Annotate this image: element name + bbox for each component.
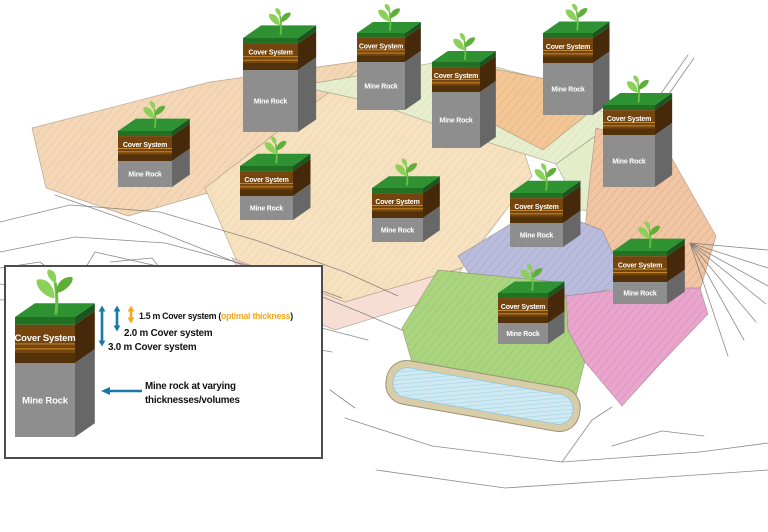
sketch-line xyxy=(612,431,704,446)
column-front-green xyxy=(498,293,548,298)
column-front-darkbrown xyxy=(543,57,593,63)
column-rock-label: Mine Rock xyxy=(439,118,473,125)
legend-line-1-5m: 1.5 m Cover system (optimal thickness) xyxy=(139,311,293,321)
column-rock-label: Mine Rock xyxy=(128,172,162,179)
column-front-darkbrown xyxy=(510,217,563,223)
column-side-gray xyxy=(75,349,95,437)
column-front-green xyxy=(118,131,172,136)
column-rock-label: Mine Rock xyxy=(22,396,69,407)
column-cover-label: Cover System xyxy=(546,44,590,51)
column-front-green xyxy=(510,193,563,198)
legend-line-2-0m: 2.0 m Cover system xyxy=(124,328,213,339)
column-front-darkbrown xyxy=(240,190,293,196)
column-cover-label: Cover System xyxy=(607,116,651,123)
column-front-darkbrown xyxy=(243,63,298,70)
region-hatch xyxy=(566,288,708,406)
column-front-darkbrown xyxy=(498,317,548,323)
column-cover-label: Cover System xyxy=(248,50,292,57)
column-front-green xyxy=(243,38,298,43)
mine-rock-column: Cover SystemMine Rock xyxy=(543,4,610,115)
column-front-darkbrown xyxy=(15,353,75,363)
column-front-green xyxy=(543,33,593,38)
column-cover-label: Cover System xyxy=(15,333,76,344)
column-front-darkbrown xyxy=(603,129,655,135)
column-cover-label: Cover System xyxy=(244,177,288,184)
column-rock-label: Mine Rock xyxy=(551,87,585,94)
column-cover-label: Cover System xyxy=(501,304,545,311)
legend-note-line2: thicknesses/volumes xyxy=(145,395,241,406)
mine-rock-column: Cover SystemMine Rock xyxy=(432,33,496,148)
column-rock-label: Mine Rock xyxy=(250,206,284,213)
column-front-green xyxy=(432,62,480,67)
column-front-green xyxy=(603,105,655,110)
column-front-green xyxy=(15,317,75,325)
column-rock-label: Mine Rock xyxy=(506,331,540,338)
legend-box: Cover SystemMine Rock 1.5 m Cover system… xyxy=(5,266,322,458)
column-front-darkbrown xyxy=(613,275,667,282)
column-rock-label: Mine Rock xyxy=(520,233,554,240)
column-front-darkbrown xyxy=(432,86,480,92)
legend-note-line1: Mine rock at varying xyxy=(145,381,236,392)
column-rock-label: Mine Rock xyxy=(623,291,657,298)
column-rock-label: Mine Rock xyxy=(254,99,288,106)
legend-line-3-0m: 3.0 m Cover system xyxy=(108,342,197,353)
column-rock-label: Mine Rock xyxy=(381,228,415,235)
column-cover-label: Cover System xyxy=(514,204,558,211)
column-front-darkbrown xyxy=(372,212,423,218)
column-cover-label: Cover System xyxy=(434,73,478,80)
sketch-line xyxy=(376,470,768,488)
column-rock-label: Mine Rock xyxy=(612,159,646,166)
column-cover-label: Cover System xyxy=(618,262,662,269)
column-front-green xyxy=(357,33,405,38)
column-front-green xyxy=(240,166,293,171)
site-map-canvas: Cover SystemMine RockCover SystemMine Ro… xyxy=(0,0,768,532)
column-rock-label: Mine Rock xyxy=(364,84,398,91)
mine-rock-column: Cover SystemMine Rock xyxy=(243,8,316,132)
column-cover-label: Cover System xyxy=(359,43,403,50)
column-side-gray xyxy=(298,57,316,132)
column-cover-label: Cover System xyxy=(375,199,419,206)
column-cover-label: Cover System xyxy=(123,142,167,149)
column-front-green xyxy=(372,188,423,193)
mine-rock-column: Cover SystemMine Rock xyxy=(357,4,421,110)
column-front-darkbrown xyxy=(118,155,172,161)
column-front-darkbrown xyxy=(357,56,405,62)
mine-site-diagram: Cover SystemMine RockCover SystemMine Ro… xyxy=(0,0,768,532)
column-side-gray xyxy=(480,81,496,148)
column-front-green xyxy=(613,251,667,256)
